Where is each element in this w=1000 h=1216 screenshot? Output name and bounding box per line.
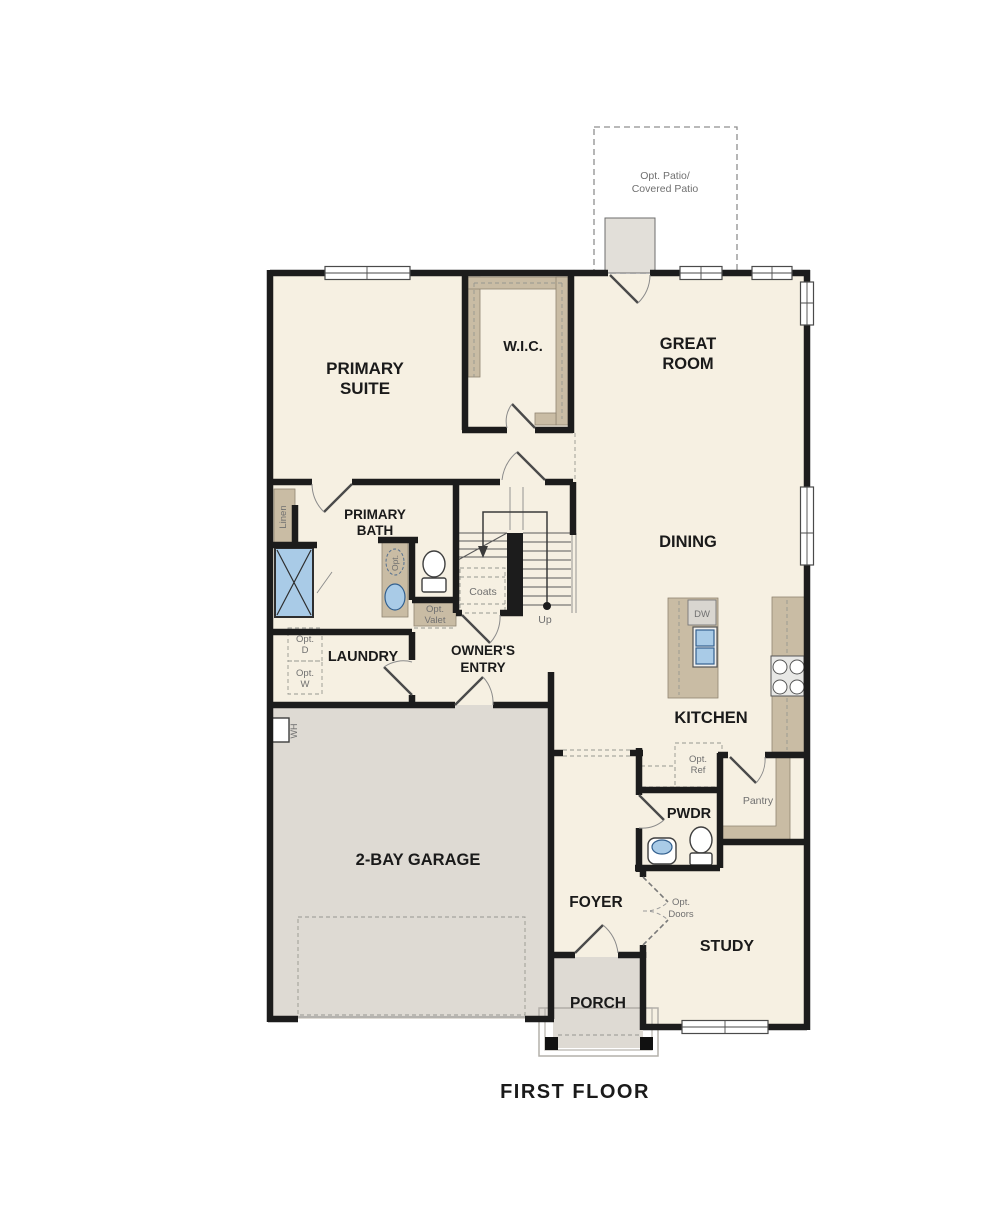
label-primary-suite-1: PRIMARY	[326, 359, 404, 378]
label-great-room-2: ROOM	[662, 355, 713, 373]
linen-label: Linen	[278, 505, 289, 528]
label-pwdr: PWDR	[667, 806, 712, 822]
water-heater	[272, 718, 289, 742]
coats-label: Coats	[469, 586, 496, 598]
label-porch: PORCH	[570, 995, 626, 1012]
wh-label: WH	[289, 724, 299, 739]
label-foyer: FOYER	[569, 894, 622, 911]
label-primary-bath-1: PRIMARY	[344, 507, 406, 522]
label-owners-entry-1: OWNER'S	[451, 643, 515, 658]
opt-valet-label-1: Opt.	[426, 604, 444, 615]
label-great-room-1: GREAT	[660, 335, 717, 353]
opt-doors-label-1: Opt.	[672, 897, 690, 908]
kitchen-sink-basin-1	[696, 630, 714, 646]
plan-title: FIRST FLOOR	[500, 1081, 650, 1103]
pwdr-toilet-tank	[690, 853, 712, 865]
label-pantry: Pantry	[743, 795, 774, 807]
label-study: STUDY	[700, 938, 755, 955]
label-kitchen: KITCHEN	[674, 709, 747, 727]
vanity-sink	[385, 584, 405, 610]
label-wic: W.I.C.	[503, 339, 542, 355]
patio-label-line2: Covered Patio	[632, 183, 699, 195]
patio-label-line1: Opt. Patio/	[640, 170, 690, 182]
dw-label: DW	[694, 609, 710, 620]
opt-d-label-2: D	[302, 645, 309, 656]
label-primary-bath-2: BATH	[357, 523, 394, 538]
opt-w-label-2: W	[301, 679, 310, 690]
burner-2	[790, 660, 804, 674]
porch-post-left	[545, 1037, 558, 1050]
up-label: Up	[538, 614, 552, 626]
floor-plan-page: Opt. Patio/ Covered Patio Up Coat	[0, 0, 1000, 1216]
porch-post-right	[640, 1037, 653, 1050]
bath-toilet-tank	[422, 578, 446, 592]
opt-valet-label-2: Valet	[425, 615, 446, 626]
opt-ref-label-1: Opt.	[689, 754, 707, 765]
label-primary-suite-2: SUITE	[340, 379, 390, 398]
bath-toilet-bowl	[423, 551, 445, 577]
burner-3	[773, 680, 787, 694]
wic-shelf-bottom	[535, 413, 556, 425]
opt-d-label-1: Opt.	[296, 634, 314, 645]
label-garage: 2-BAY GARAGE	[356, 851, 481, 869]
kitchen-sink-basin-2	[696, 648, 714, 664]
stair-center-wall	[507, 533, 523, 615]
floor-plan-canvas: Opt. Patio/ Covered Patio Up Coat	[0, 0, 1000, 1216]
optional-sink-label: Opt.	[390, 555, 400, 571]
opt-doors-label-2: Doors	[668, 909, 694, 920]
label-dining: DINING	[659, 533, 717, 551]
label-owners-entry-2: ENTRY	[460, 660, 505, 675]
burner-4	[790, 680, 804, 694]
stair-start-dot	[543, 602, 551, 610]
pwdr-toilet-bowl	[690, 827, 712, 853]
pwdr-sink-bowl	[652, 840, 672, 854]
optional-patio: Opt. Patio/ Covered Patio	[594, 127, 737, 273]
opt-w-label-1: Opt.	[296, 668, 314, 679]
patio-landing	[605, 218, 655, 273]
label-laundry: LAUNDRY	[328, 649, 399, 665]
burner-1	[773, 660, 787, 674]
opt-ref-label-2: Ref	[691, 765, 706, 776]
